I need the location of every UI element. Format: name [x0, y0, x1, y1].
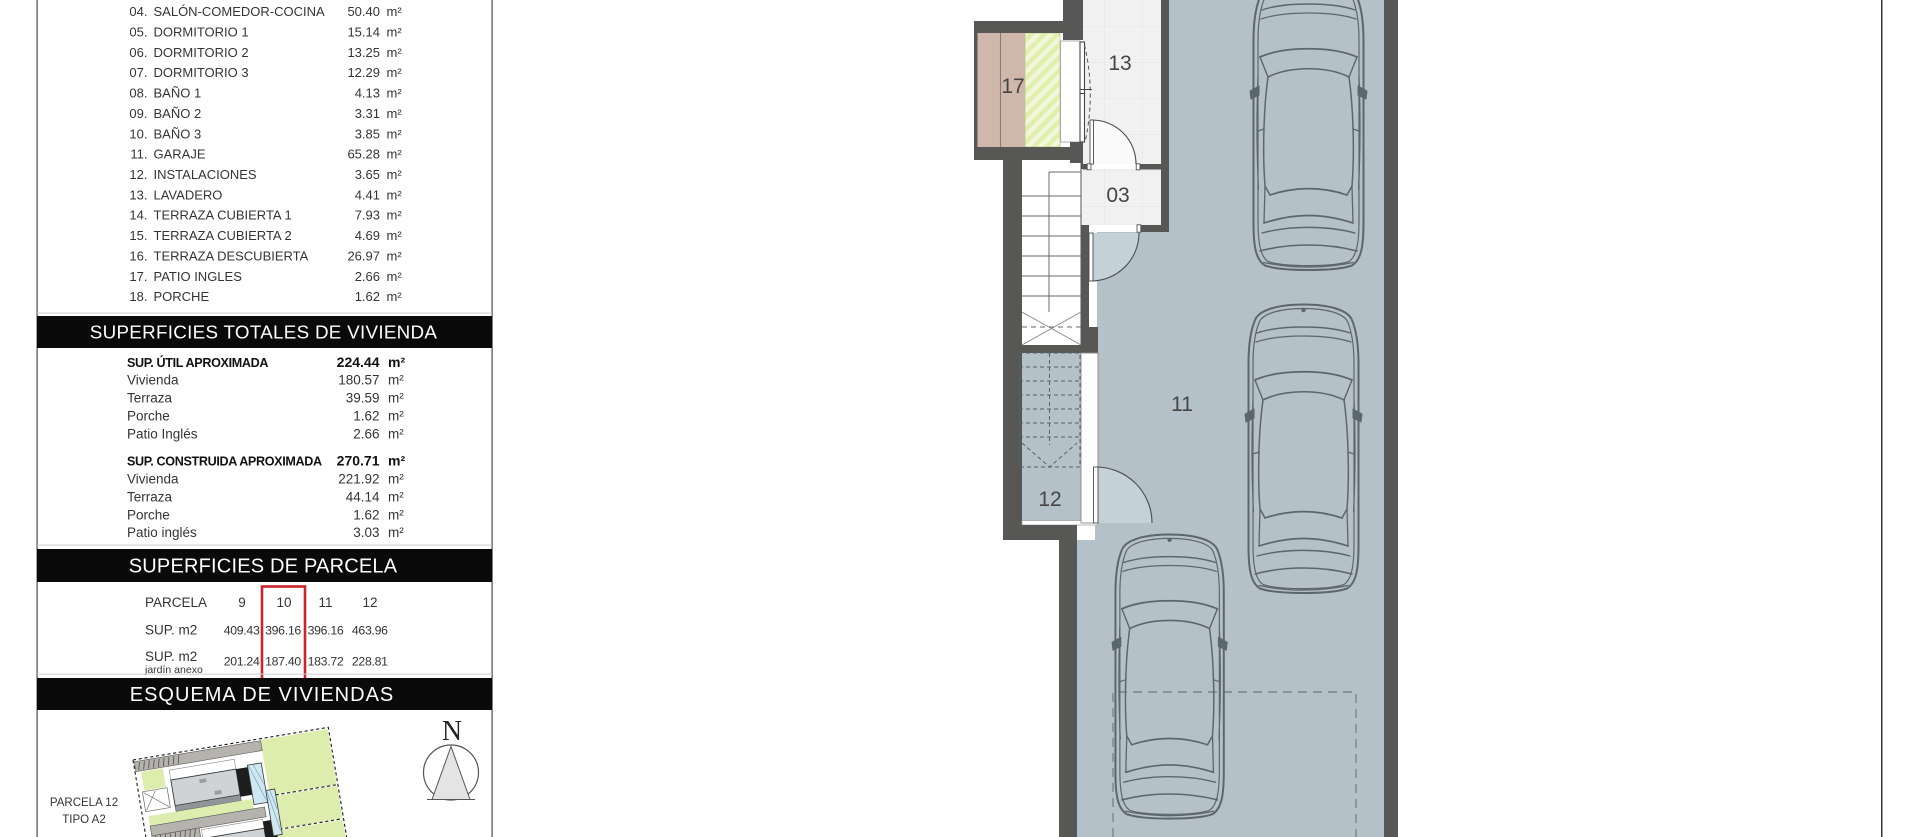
svg-text:SUPERFICIES TOTALES DE VIVIEND: SUPERFICIES TOTALES DE VIVIENDA	[90, 322, 438, 343]
svg-text:BAÑO 3: BAÑO 3	[154, 126, 202, 141]
svg-text:m²: m²	[387, 208, 403, 223]
svg-text:m²: m²	[387, 289, 403, 304]
svg-text:m²: m²	[388, 453, 405, 469]
svg-text:201.24: 201.24	[224, 655, 260, 669]
svg-text:m²: m²	[388, 373, 404, 388]
svg-text:228.81: 228.81	[352, 655, 388, 669]
svg-text:2.66: 2.66	[353, 427, 379, 442]
svg-text:Vivienda: Vivienda	[127, 472, 179, 487]
svg-text:m²: m²	[388, 354, 405, 370]
svg-text:GARAJE: GARAJE	[154, 147, 206, 162]
svg-text:BAÑO 1: BAÑO 1	[154, 86, 202, 101]
svg-text:Terraza: Terraza	[127, 391, 173, 406]
svg-text:Patio inglés: Patio inglés	[127, 525, 197, 540]
svg-text:187.40: 187.40	[265, 655, 301, 669]
svg-text:17.: 17.	[129, 269, 147, 284]
svg-text:SUP. m2: SUP. m2	[145, 623, 197, 638]
svg-text:m²: m²	[387, 106, 403, 121]
svg-text:m²: m²	[388, 508, 404, 523]
svg-text:409.43: 409.43	[224, 624, 260, 638]
svg-text:12: 12	[1038, 488, 1061, 511]
svg-text:m²: m²	[387, 147, 403, 162]
svg-text:3.85: 3.85	[355, 126, 380, 141]
svg-text:SUP. m2: SUP. m2	[145, 649, 197, 664]
svg-text:26.97: 26.97	[347, 248, 380, 263]
svg-text:11: 11	[318, 595, 332, 610]
svg-text:m²: m²	[387, 187, 403, 202]
svg-text:m²: m²	[387, 25, 403, 40]
svg-text:9: 9	[238, 595, 246, 610]
svg-text:396.16: 396.16	[308, 624, 344, 638]
svg-text:3.31: 3.31	[355, 106, 380, 121]
svg-text:12.29: 12.29	[347, 65, 380, 80]
svg-text:m²: m²	[387, 167, 403, 182]
svg-text:4.13: 4.13	[355, 86, 380, 101]
svg-text:09.: 09.	[129, 106, 147, 121]
svg-text:39.59: 39.59	[346, 391, 380, 406]
svg-text:183.72: 183.72	[308, 655, 344, 669]
svg-text:N: N	[442, 716, 462, 747]
svg-text:PATIO INGLES: PATIO INGLES	[154, 269, 243, 284]
svg-text:16.: 16.	[129, 248, 147, 263]
svg-text:m²: m²	[387, 269, 403, 284]
svg-text:65.28: 65.28	[347, 147, 380, 162]
svg-text:m²: m²	[388, 472, 404, 487]
svg-text:224.44: 224.44	[337, 354, 380, 370]
svg-text:03: 03	[1106, 184, 1129, 207]
svg-text:Vivienda: Vivienda	[127, 373, 179, 388]
svg-text:50.40: 50.40	[347, 4, 380, 19]
svg-text:13.: 13.	[129, 187, 147, 202]
svg-text:463.96: 463.96	[352, 624, 388, 638]
svg-text:05.: 05.	[129, 25, 147, 40]
svg-text:15.: 15.	[129, 228, 147, 243]
svg-text:4.41: 4.41	[355, 187, 380, 202]
svg-text:4.69: 4.69	[355, 228, 380, 243]
svg-text:17: 17	[1001, 75, 1024, 98]
svg-text:221.92: 221.92	[338, 472, 379, 487]
svg-text:m²: m²	[388, 525, 404, 540]
svg-text:m²: m²	[388, 409, 404, 424]
svg-text:TERRAZA CUBIERTA 1: TERRAZA CUBIERTA 1	[154, 208, 292, 223]
svg-text:14.: 14.	[129, 208, 147, 223]
svg-text:m²: m²	[388, 490, 404, 505]
svg-text:08.: 08.	[129, 86, 147, 101]
svg-text:1.62: 1.62	[355, 289, 380, 304]
svg-text:TIPO A2: TIPO A2	[62, 814, 105, 826]
svg-text:Porche: Porche	[127, 409, 170, 424]
svg-text:3.03: 3.03	[353, 525, 379, 540]
svg-text:ESQUEMA DE VIVIENDAS: ESQUEMA DE VIVIENDAS	[130, 684, 395, 706]
svg-text:1.62: 1.62	[353, 409, 379, 424]
svg-text:7.93: 7.93	[355, 208, 380, 223]
svg-text:3.65: 3.65	[355, 167, 380, 182]
svg-text:LAVADERO: LAVADERO	[154, 187, 223, 202]
svg-text:INSTALACIONES: INSTALACIONES	[154, 167, 257, 182]
svg-text:SUP. CONSTRUIDA APROXIMADA: SUP. CONSTRUIDA APROXIMADA	[127, 455, 322, 469]
svg-text:PARCELA: PARCELA	[145, 595, 207, 610]
svg-text:PARCELA 12: PARCELA 12	[50, 797, 118, 809]
svg-text:SALÓN-COMEDOR-COCINA: SALÓN-COMEDOR-COCINA	[154, 4, 326, 19]
svg-text:10: 10	[276, 595, 291, 610]
svg-text:TERRAZA CUBIERTA 2: TERRAZA CUBIERTA 2	[154, 228, 292, 243]
svg-text:Terraza: Terraza	[127, 490, 173, 505]
svg-text:04.: 04.	[129, 4, 147, 19]
svg-text:SUP. ÚTIL APROXIMADA: SUP. ÚTIL APROXIMADA	[127, 355, 268, 370]
svg-text:396.16: 396.16	[265, 624, 301, 638]
svg-text:18.: 18.	[129, 289, 147, 304]
svg-text:Porche: Porche	[127, 508, 170, 523]
svg-text:m²: m²	[387, 86, 403, 101]
svg-text:2.66: 2.66	[355, 269, 380, 284]
svg-text:DORMITORIO 1: DORMITORIO 1	[154, 25, 249, 40]
svg-text:m²: m²	[387, 4, 403, 19]
svg-text:1.62: 1.62	[353, 508, 379, 523]
svg-text:12.: 12.	[129, 167, 147, 182]
svg-text:PORCHE: PORCHE	[154, 289, 210, 304]
svg-text:BAÑO 2: BAÑO 2	[154, 106, 202, 121]
svg-text:270.71: 270.71	[337, 453, 380, 469]
svg-text:13: 13	[1108, 52, 1131, 75]
svg-text:m²: m²	[387, 45, 403, 60]
svg-text:12: 12	[362, 595, 377, 610]
svg-text:13.25: 13.25	[347, 45, 380, 60]
svg-text:m²: m²	[387, 248, 403, 263]
svg-text:06.: 06.	[129, 45, 147, 60]
svg-text:m²: m²	[388, 427, 404, 442]
svg-text:07.: 07.	[129, 65, 147, 80]
svg-text:180.57: 180.57	[338, 373, 379, 388]
svg-text:15.14: 15.14	[347, 25, 380, 40]
svg-text:Patio Inglés: Patio Inglés	[127, 427, 198, 442]
svg-text:11: 11	[1171, 393, 1193, 416]
svg-text:10.: 10.	[129, 126, 147, 141]
svg-text:SUPERFICIES DE PARCELA: SUPERFICIES DE PARCELA	[129, 556, 398, 578]
svg-text:44.14: 44.14	[346, 490, 380, 505]
svg-text:11.: 11.	[130, 147, 147, 162]
svg-text:m²: m²	[387, 126, 403, 141]
svg-text:DORMITORIO 3: DORMITORIO 3	[154, 65, 249, 80]
svg-text:m²: m²	[387, 65, 403, 80]
svg-text:m²: m²	[387, 228, 403, 243]
svg-text:DORMITORIO 2: DORMITORIO 2	[154, 45, 249, 60]
svg-text:m²: m²	[388, 391, 404, 406]
svg-text:TERRAZA DESCUBIERTA: TERRAZA DESCUBIERTA	[154, 248, 309, 263]
